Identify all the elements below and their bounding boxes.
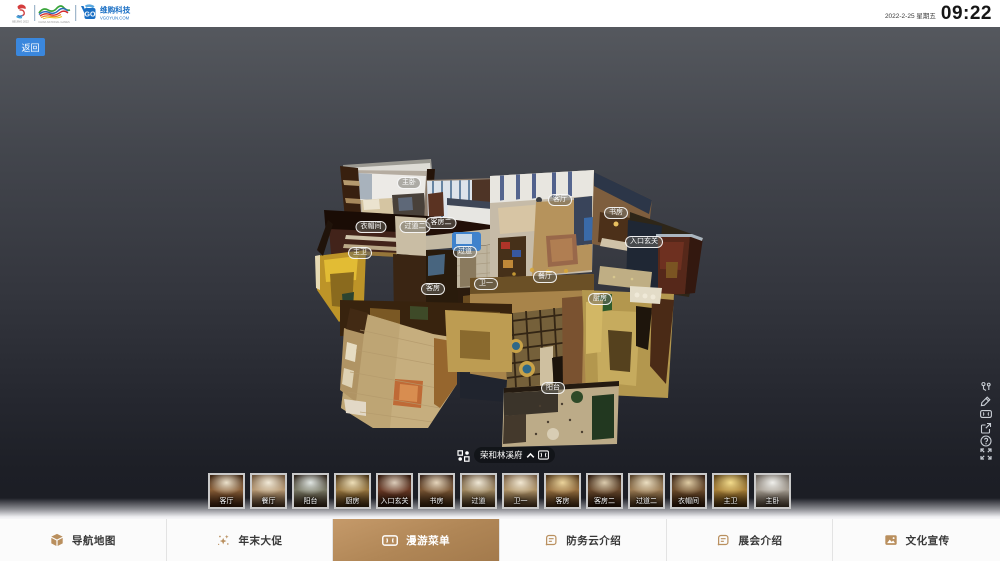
svg-text:VGOYUN.COM: VGOYUN.COM [100, 16, 130, 21]
svg-text:维购科技: 维购科技 [100, 5, 131, 15]
svg-text:BEIJING 2022: BEIJING 2022 [12, 20, 29, 24]
svg-text:CHINA NATIONAL GAMES: CHINA NATIONAL GAMES [38, 20, 70, 24]
svg-text:GO: GO [85, 11, 96, 18]
